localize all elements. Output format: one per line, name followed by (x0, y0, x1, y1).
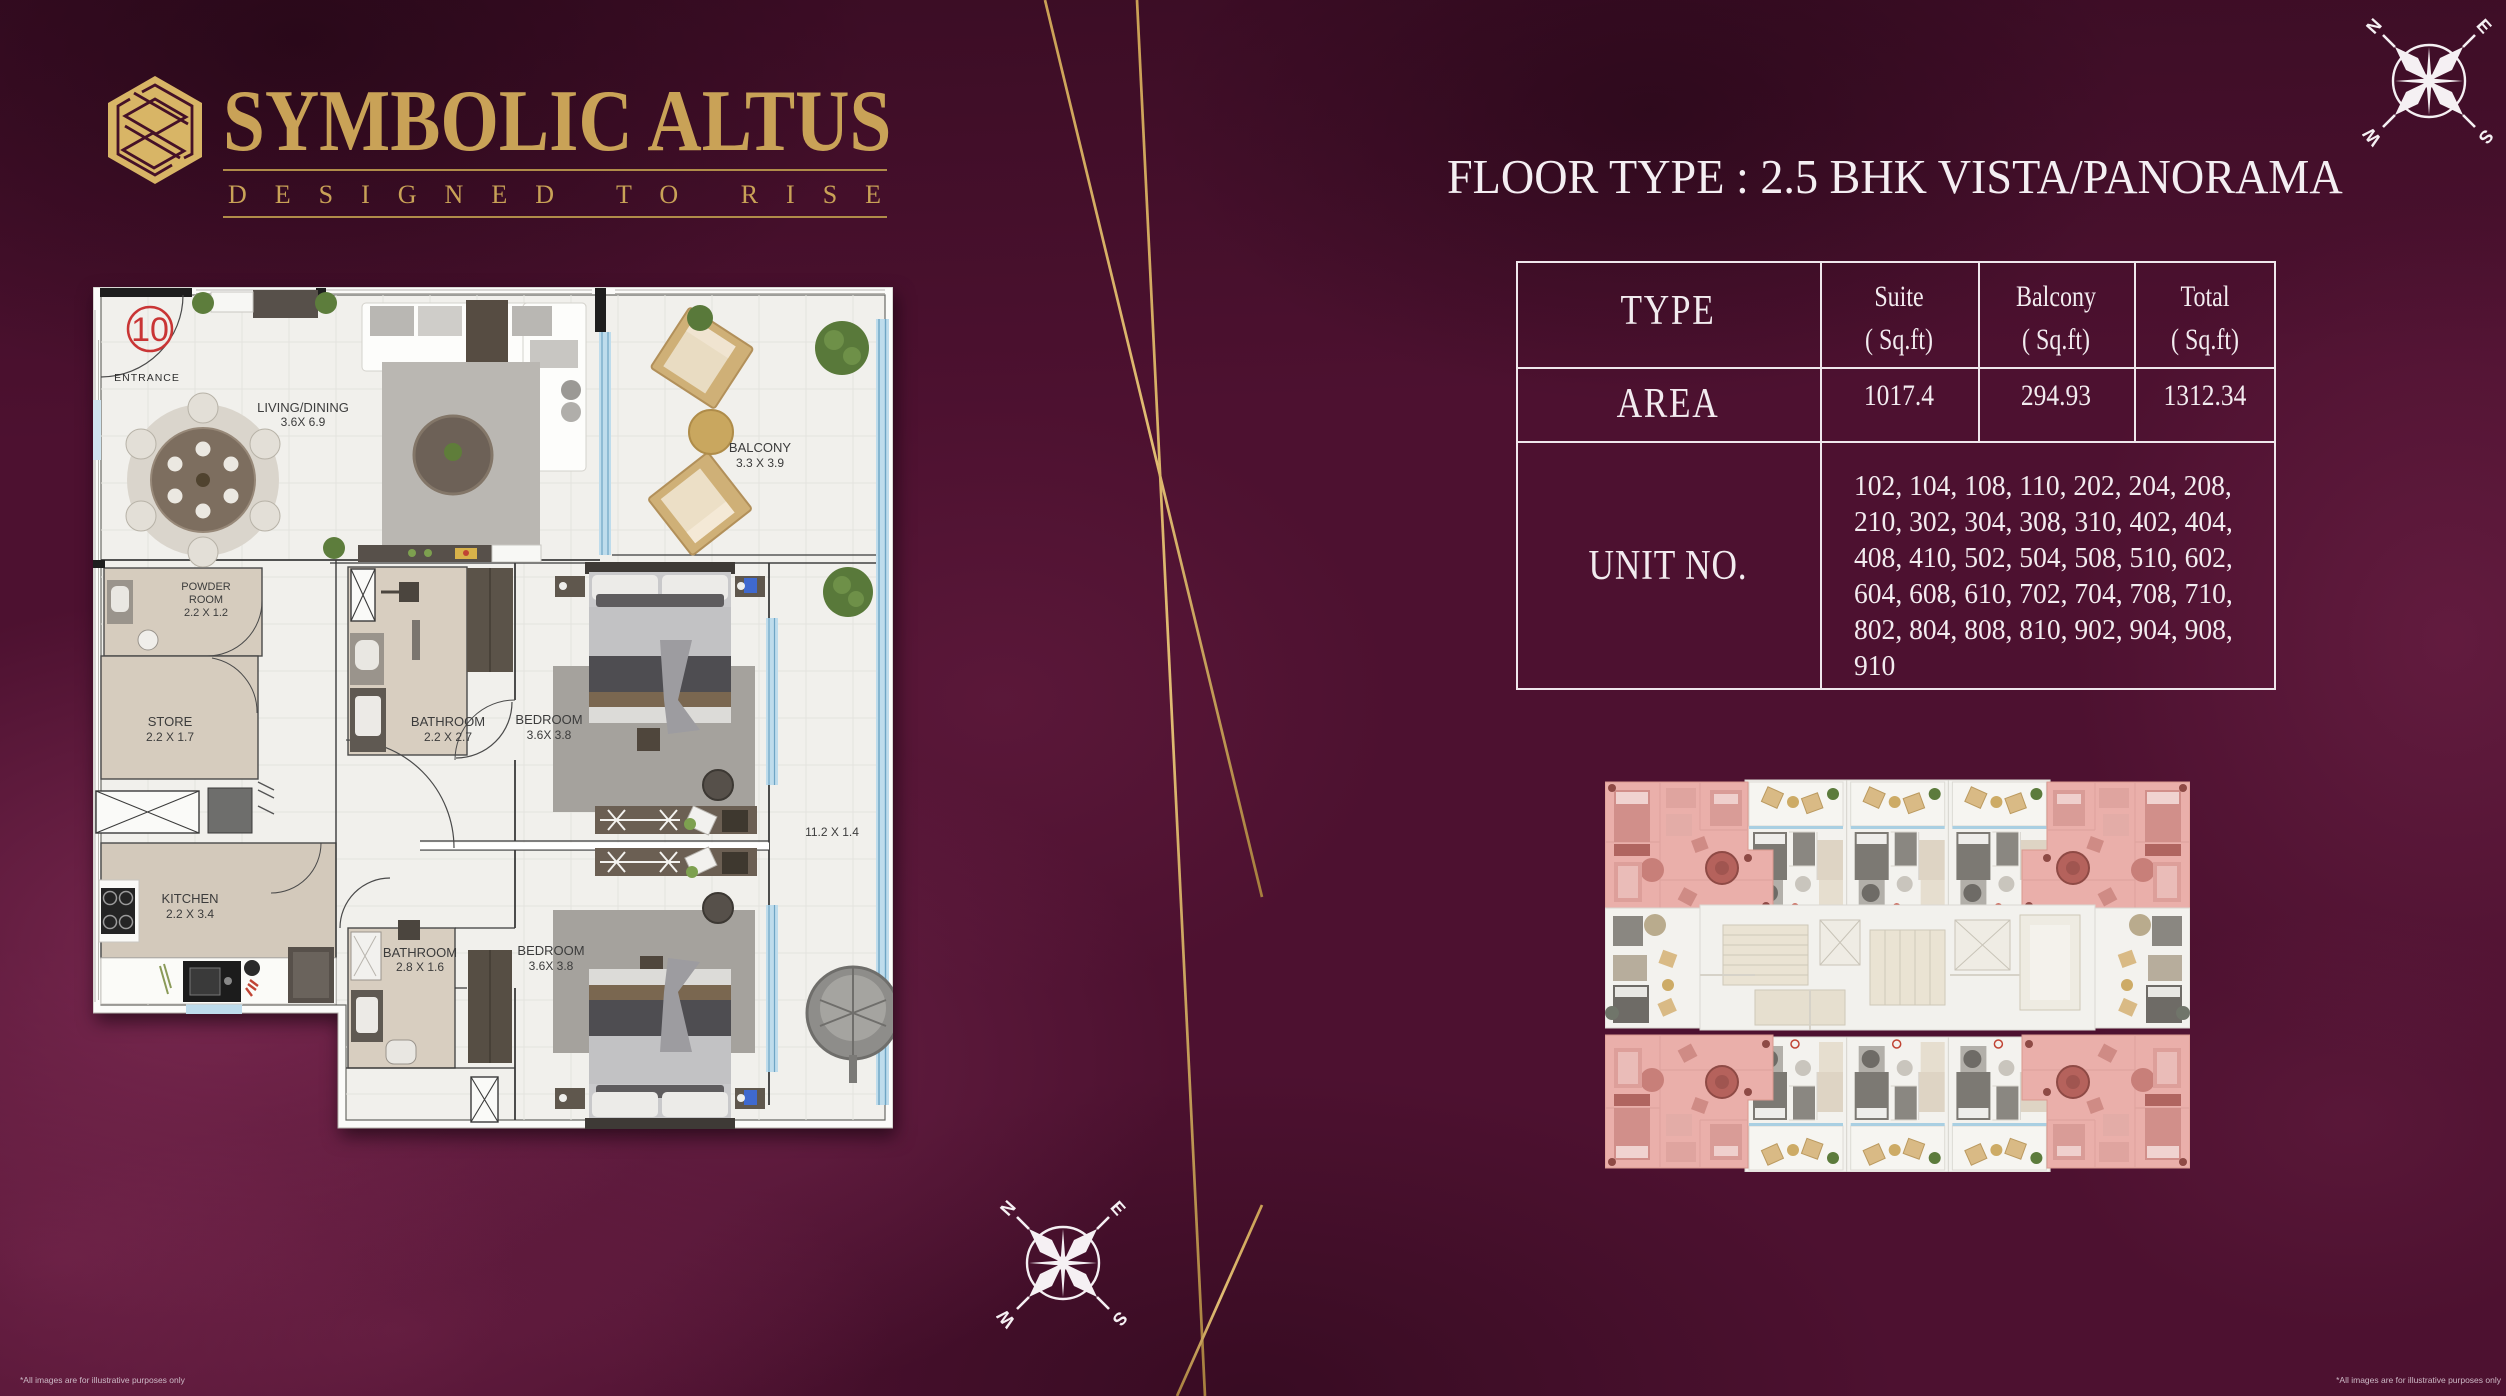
svg-text:2.8 X 1.6: 2.8 X 1.6 (396, 960, 444, 974)
svg-text:3.6X 3.8: 3.6X 3.8 (527, 728, 572, 742)
svg-text:ROOM: ROOM (189, 594, 223, 606)
svg-text:S: S (2474, 126, 2496, 148)
svg-text:POWDER: POWDER (181, 581, 231, 593)
svg-text:BEDROOM: BEDROOM (517, 943, 584, 958)
svg-text:2.2 X 3.4: 2.2 X 3.4 (166, 907, 214, 921)
svg-text:W: W (2362, 124, 2385, 148)
svg-text:KITCHEN: KITCHEN (161, 891, 218, 906)
svg-text:2.2 X 1.2: 2.2 X 1.2 (184, 607, 228, 619)
svg-text:BATHROOM: BATHROOM (383, 945, 457, 960)
svg-text:ENTRANCE: ENTRANCE (114, 372, 180, 384)
svg-text:2.2 X 2.7: 2.2 X 2.7 (424, 730, 472, 744)
svg-text:3.6X 3.8: 3.6X 3.8 (529, 959, 574, 973)
svg-text:STORE: STORE (148, 714, 193, 729)
svg-text:N: N (2362, 15, 2386, 38)
svg-text:BATHROOM: BATHROOM (411, 714, 485, 729)
svg-text:2.2 X 1.7: 2.2 X 1.7 (146, 730, 194, 744)
svg-text:BALCONY: BALCONY (729, 440, 791, 455)
svg-text:11.2 X 1.4: 11.2 X 1.4 (805, 825, 859, 839)
svg-text:E: E (2472, 15, 2495, 37)
svg-text:LIVING/DINING: LIVING/DINING (257, 400, 349, 415)
svg-text:3.3 X 3.9: 3.3 X 3.9 (736, 456, 784, 470)
svg-text:3.6X 6.9: 3.6X 6.9 (281, 415, 326, 429)
svg-text:10: 10 (131, 311, 169, 349)
svg-text:BEDROOM: BEDROOM (515, 712, 582, 727)
